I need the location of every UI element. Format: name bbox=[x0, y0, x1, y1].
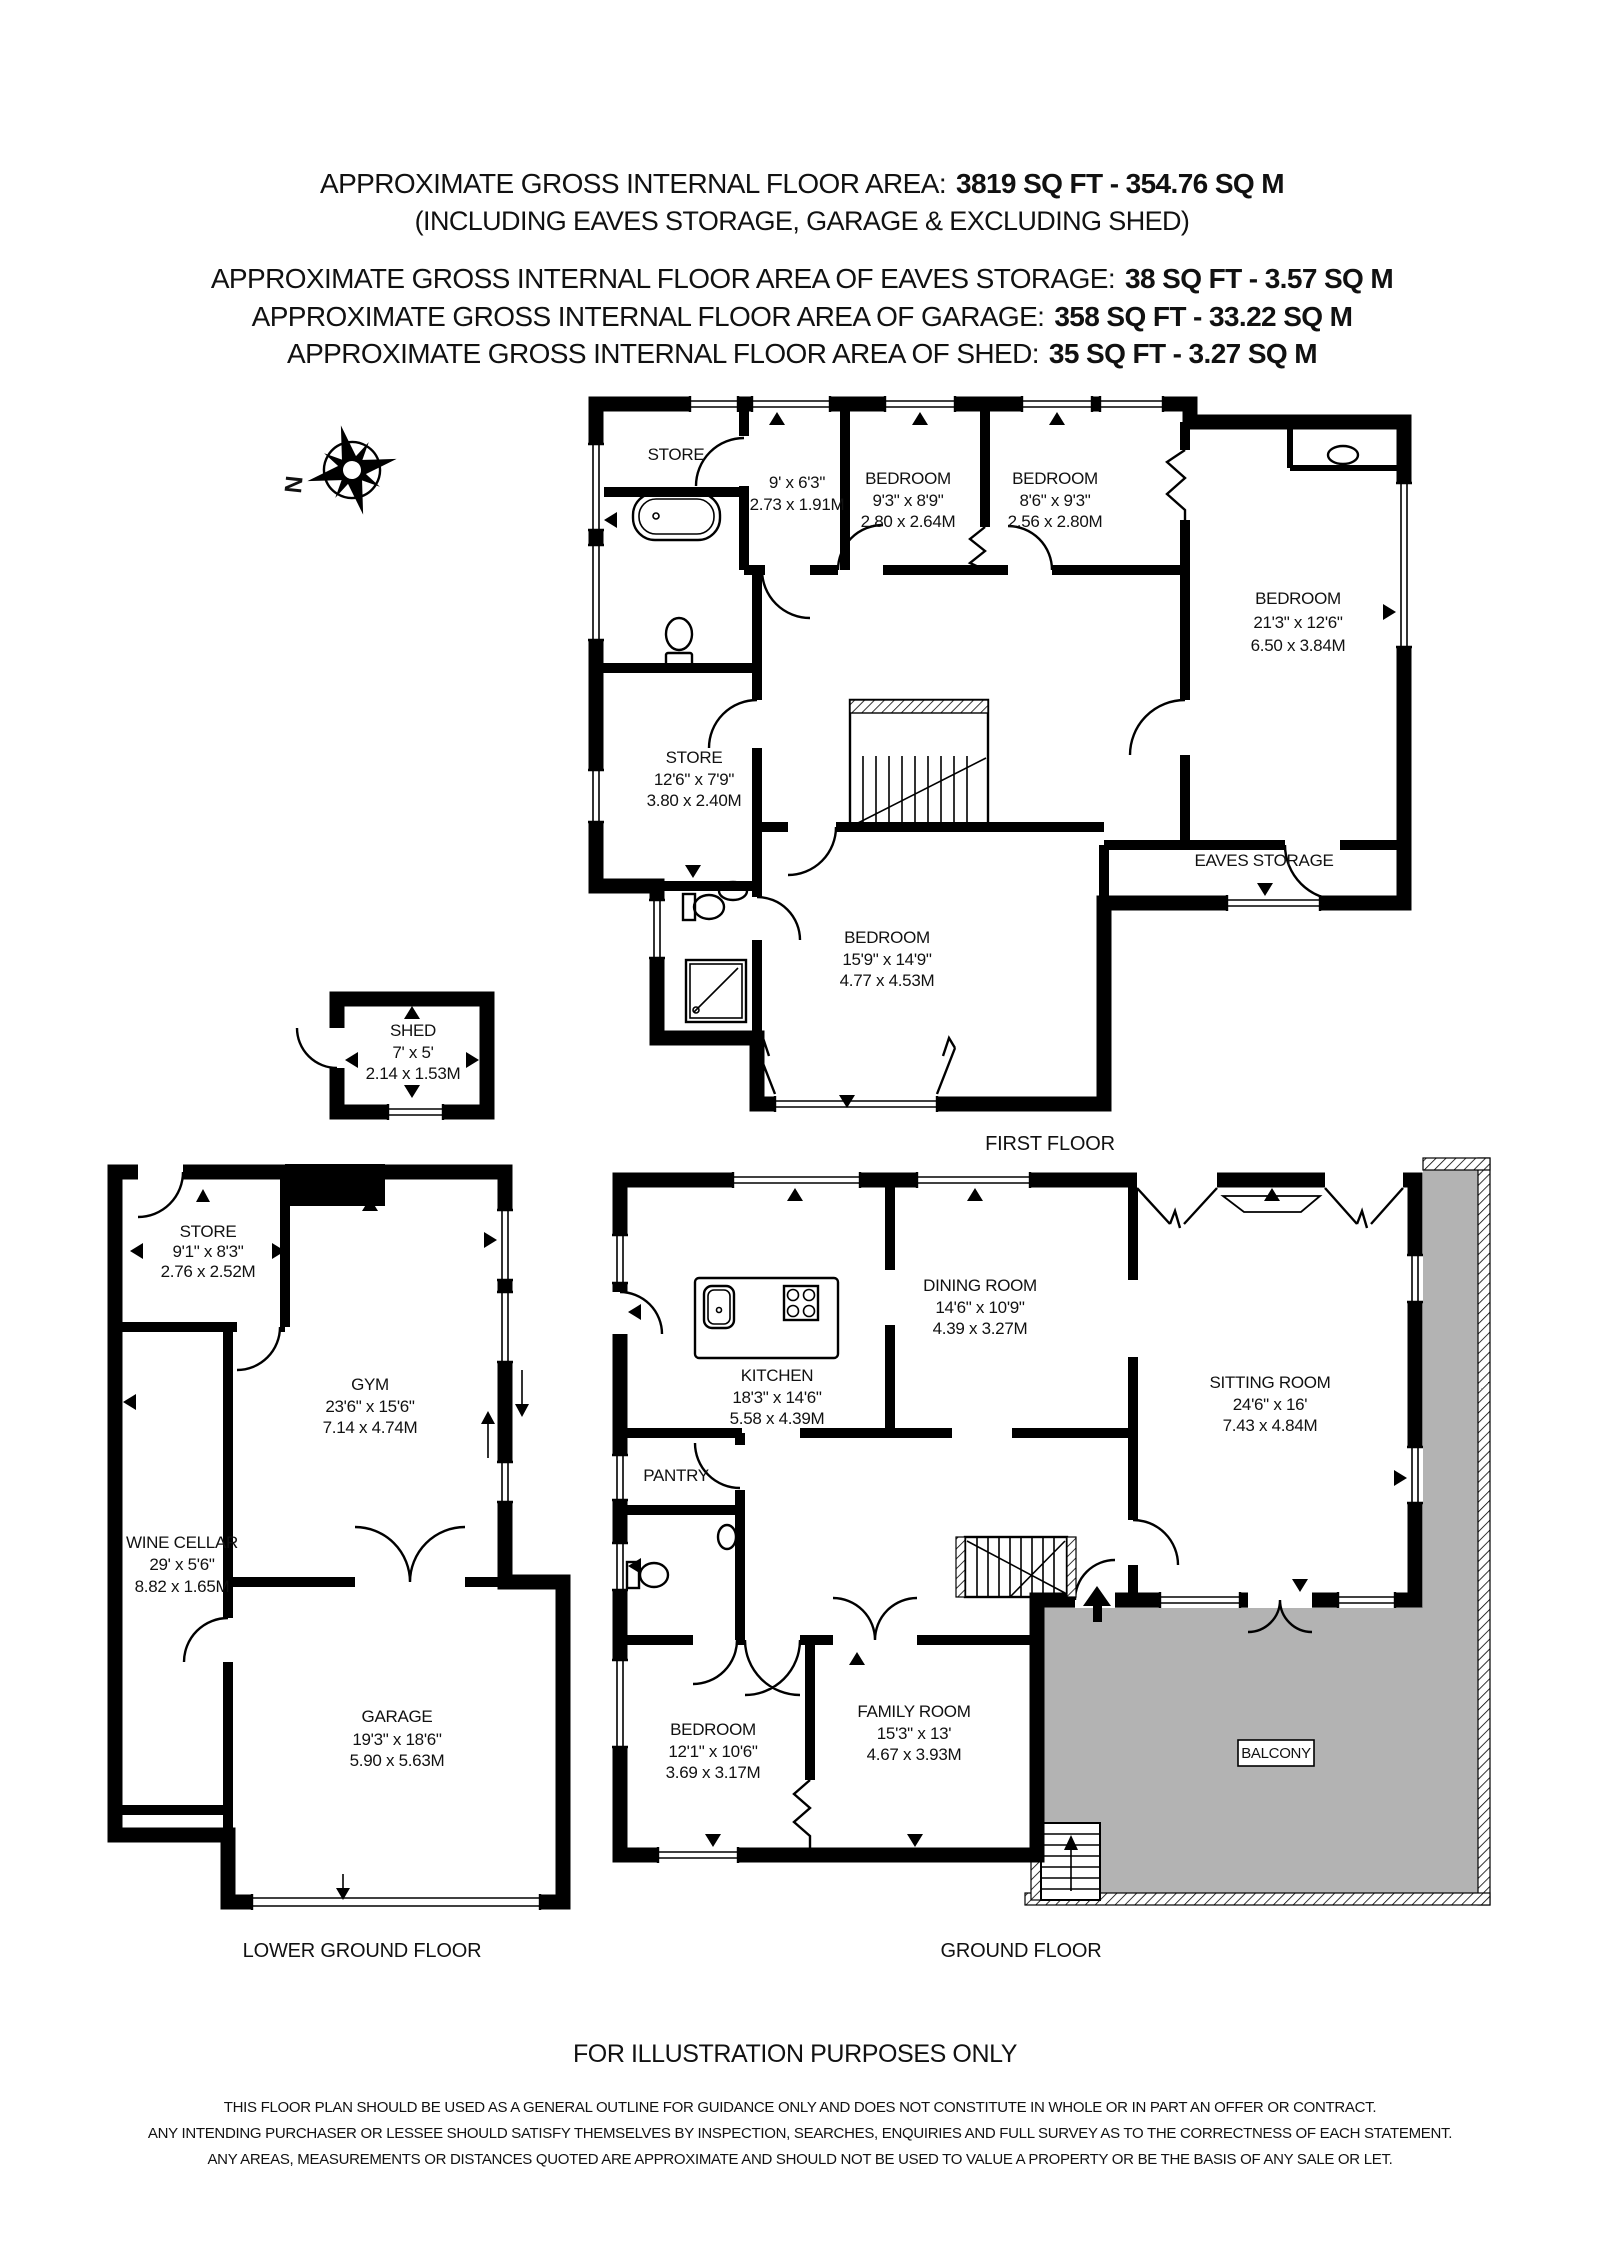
room-label-bedroom-ground: BEDROOM bbox=[670, 1720, 756, 1739]
svg-text:12'6" x 7'9": 12'6" x 7'9" bbox=[654, 770, 734, 789]
shed-plan: SHED 7' x 5' 2.14 x 1.53M bbox=[297, 999, 487, 1120]
footer-disclaimer-3: ANY AREAS, MEASUREMENTS OR DISTANCES QUO… bbox=[207, 2151, 1392, 2168]
toilet bbox=[666, 618, 692, 650]
room-label-shed: SHED bbox=[390, 1021, 436, 1040]
room-label-family: FAMILY ROOM bbox=[857, 1702, 970, 1721]
svg-text:29' x 5'6": 29' x 5'6" bbox=[149, 1555, 215, 1574]
first-floor-stairs bbox=[850, 700, 988, 828]
room-label-bedroom-b: BEDROOM bbox=[1012, 469, 1098, 488]
svg-text:9'3" x 8'9": 9'3" x 8'9" bbox=[872, 491, 943, 510]
header-line-5: APPROXIMATE GROSS INTERNAL FLOOR AREA OF… bbox=[287, 338, 1317, 369]
sink-ground bbox=[718, 1525, 736, 1549]
svg-text:2.76 x 2.52M: 2.76 x 2.52M bbox=[161, 1262, 256, 1281]
svg-text:7.43 x 4.84M: 7.43 x 4.84M bbox=[1223, 1416, 1318, 1435]
floor-plan-canvas: APPROXIMATE GROSS INTERNAL FLOOR AREA:38… bbox=[0, 0, 1600, 2262]
svg-text:19'3" x 18'6": 19'3" x 18'6" bbox=[352, 1730, 442, 1749]
svg-text:15'9" x 14'9": 15'9" x 14'9" bbox=[842, 950, 932, 969]
room-label-store-lower: STORE bbox=[180, 1222, 237, 1241]
bathtub bbox=[633, 493, 720, 540]
room-label-bedroom-c: BEDROOM bbox=[1255, 589, 1341, 608]
footer-disclaimer-1: THIS FLOOR PLAN SHOULD BE USED AS A GENE… bbox=[224, 2099, 1377, 2116]
vanity-sink bbox=[1328, 446, 1358, 464]
svg-text:7.14 x 4.74M: 7.14 x 4.74M bbox=[323, 1418, 418, 1437]
svg-text:2.80 x 2.64M: 2.80 x 2.64M bbox=[861, 512, 956, 531]
room-label-sitting: SITTING ROOM bbox=[1209, 1373, 1330, 1392]
room-label-landing-ft: 9' x 6'3" bbox=[769, 473, 825, 492]
svg-text:9'1" x 8'3": 9'1" x 8'3" bbox=[172, 1242, 243, 1261]
balcony-stairs bbox=[1041, 1823, 1100, 1900]
svg-text:24'6" x 16': 24'6" x 16' bbox=[1233, 1395, 1307, 1414]
garage-door bbox=[252, 1874, 540, 1910]
header-line-2: (INCLUDING EAVES STORAGE, GARAGE & EXCLU… bbox=[415, 206, 1190, 236]
room-label-store-mid: STORE bbox=[666, 748, 723, 767]
lower-ground-floor-label: LOWER GROUND FLOOR bbox=[243, 1940, 482, 1962]
header-line-4: APPROXIMATE GROSS INTERNAL FLOOR AREA OF… bbox=[252, 301, 1353, 332]
footer-disclaimer-2: ANY INTENDING PURCHASER OR LESSEE SHOULD… bbox=[148, 2125, 1452, 2142]
room-label-balcony: BALCONY bbox=[1241, 1745, 1311, 1762]
room-label-eaves-storage: EAVES STORAGE bbox=[1194, 851, 1333, 870]
ground-wc-fixtures bbox=[627, 1525, 736, 1588]
svg-text:23'6" x 15'6": 23'6" x 15'6" bbox=[325, 1397, 415, 1416]
room-label-kitchen: KITCHEN bbox=[741, 1366, 814, 1385]
svg-text:18'3" x 14'6": 18'3" x 14'6" bbox=[732, 1388, 822, 1407]
room-label-bedroom-d: BEDROOM bbox=[844, 928, 930, 947]
room-label-bedroom-a: BEDROOM bbox=[865, 469, 951, 488]
svg-text:5.90 x 5.63M: 5.90 x 5.63M bbox=[350, 1751, 445, 1770]
svg-text:8'6" x 9'3": 8'6" x 9'3" bbox=[1019, 491, 1090, 510]
compass-north-label: N bbox=[280, 475, 309, 495]
svg-text:4.67 x 3.93M: 4.67 x 3.93M bbox=[867, 1745, 962, 1764]
room-label-store-top: STORE bbox=[648, 445, 705, 464]
room-label-garage: GARAGE bbox=[362, 1707, 433, 1726]
footer-title: FOR ILLUSTRATION PURPOSES ONLY bbox=[573, 2040, 1018, 2068]
ground-floor-stairs bbox=[956, 1537, 1076, 1597]
svg-text:8.82 x 1.65M: 8.82 x 1.65M bbox=[135, 1577, 230, 1596]
svg-text:6.50 x 3.84M: 6.50 x 3.84M bbox=[1251, 636, 1346, 655]
svg-text:2.56 x 2.80M: 2.56 x 2.80M bbox=[1008, 512, 1103, 531]
svg-text:3.69 x 3.17M: 3.69 x 3.17M bbox=[666, 1763, 761, 1782]
lower-ground-floor-plan: STORE 9'1" x 8'3" 2.76 x 2.52M GYM 23'6"… bbox=[115, 1164, 563, 1962]
svg-text:5.58 x 4.39M: 5.58 x 4.39M bbox=[730, 1409, 825, 1428]
svg-text:14'6" x 10'9": 14'6" x 10'9" bbox=[935, 1298, 1025, 1317]
room-label-wine-cellar: WINE CELLAR bbox=[126, 1533, 238, 1552]
svg-text:4.39 x 3.27M: 4.39 x 3.27M bbox=[933, 1319, 1028, 1338]
svg-text:7' x 5': 7' x 5' bbox=[392, 1043, 433, 1062]
room-label-landing-m: 2.73 x 1.91M bbox=[750, 495, 845, 514]
ground-floor-plan: BALCONY bbox=[612, 1158, 1490, 1962]
first-floor-label: FIRST FLOOR bbox=[985, 1133, 1115, 1155]
kitchen-island bbox=[695, 1278, 838, 1358]
svg-text:15'3" x 13': 15'3" x 13' bbox=[877, 1724, 951, 1743]
measure-arrows-first bbox=[604, 412, 1396, 1108]
ground-floor-label: GROUND FLOOR bbox=[941, 1940, 1102, 1962]
svg-text:12'1" x 10'6": 12'1" x 10'6" bbox=[668, 1742, 758, 1761]
svg-text:21'3" x 12'6": 21'3" x 12'6" bbox=[1253, 613, 1343, 632]
header: APPROXIMATE GROSS INTERNAL FLOOR AREA:38… bbox=[211, 168, 1393, 369]
lower-floor-windows bbox=[138, 1164, 513, 1502]
svg-text:3.80 x 2.40M: 3.80 x 2.40M bbox=[647, 791, 742, 810]
compass-rose: N bbox=[268, 414, 408, 533]
header-line-3: APPROXIMATE GROSS INTERNAL FLOOR AREA OF… bbox=[211, 263, 1393, 294]
room-label-dining: DINING ROOM bbox=[923, 1276, 1037, 1295]
svg-text:4.77 x 4.53M: 4.77 x 4.53M bbox=[840, 971, 935, 990]
footer: FOR ILLUSTRATION PURPOSES ONLY THIS FLOO… bbox=[148, 2040, 1452, 2168]
room-label-gym: GYM bbox=[351, 1375, 389, 1394]
room-label-pantry: PANTRY bbox=[643, 1466, 709, 1485]
header-line-1: APPROXIMATE GROSS INTERNAL FLOOR AREA:38… bbox=[320, 168, 1284, 199]
svg-text:2.14 x 1.53M: 2.14 x 1.53M bbox=[366, 1064, 461, 1083]
first-floor-plan: STORE 9' x 6'3" 2.73 x 1.91M BEDROOM 9'3… bbox=[588, 396, 1412, 1155]
